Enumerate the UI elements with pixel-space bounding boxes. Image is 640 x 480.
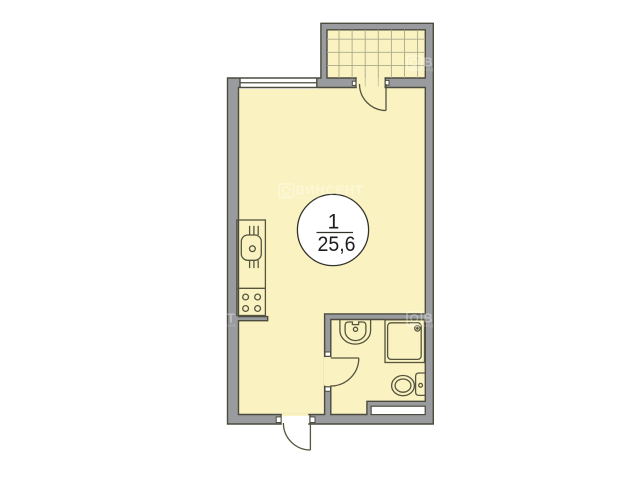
svg-text:25,6: 25,6 [318, 233, 356, 256]
svg-text:НЕДВИЖИМОСТЬ И РЕМОНТ: НЕДВИЖИМОСТЬ И РЕМОНТ [168, 67, 236, 72]
svg-text:1: 1 [328, 211, 340, 234]
